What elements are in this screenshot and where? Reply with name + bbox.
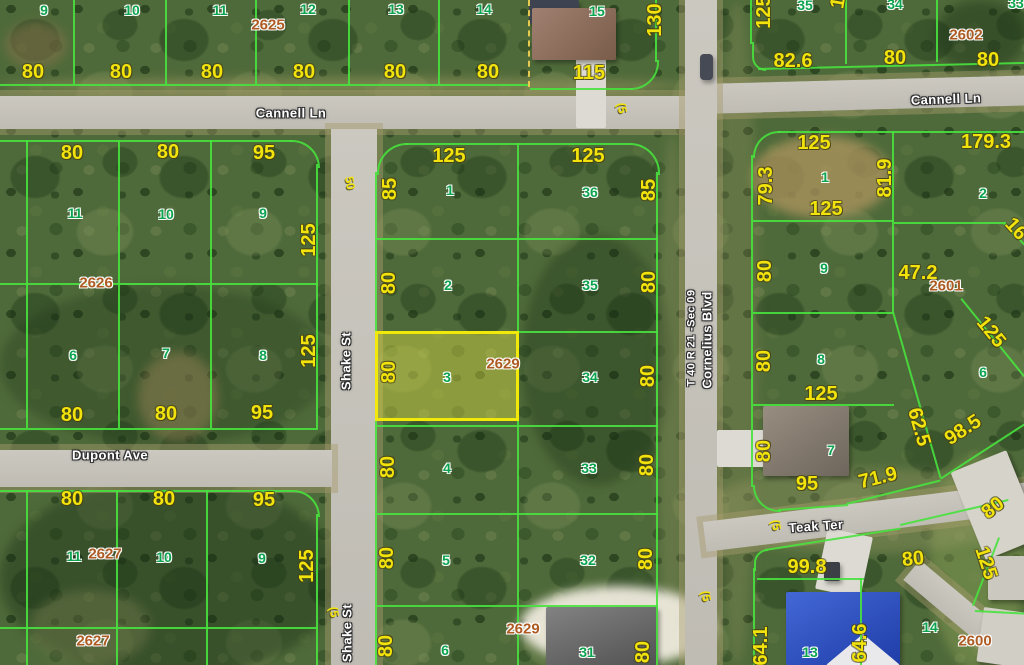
dimension-label: 80	[22, 62, 44, 82]
parcel-line	[750, 0, 752, 44]
lot-number-label: 8	[259, 348, 267, 362]
lot-number-label: 31	[579, 645, 595, 659]
parcel-corner-line	[630, 60, 659, 90]
parcel-line	[73, 0, 75, 84]
lot-number-label: 2	[979, 186, 987, 200]
dimension-label: 80	[755, 260, 775, 282]
lot-number-label: 13	[388, 2, 404, 16]
parcel-line	[116, 490, 118, 665]
dimension-label: 99.8	[788, 557, 827, 577]
parcel-map: Cannell LnCannell LnShake StShake StDupo…	[0, 0, 1024, 665]
curve-dimension-label: (5	[327, 606, 341, 619]
lot-number-label: 35	[797, 0, 813, 12]
curve-dimension-label: (5	[699, 590, 713, 603]
dimension-label: 80	[293, 62, 315, 82]
dimension-label: 98.5	[941, 411, 985, 449]
house-roof-lot7	[763, 406, 849, 476]
lot-number-label: 12	[300, 2, 316, 16]
dimension-label: 80	[201, 62, 223, 82]
lot-number-label: 11	[67, 549, 82, 563]
car-on-cornelius	[700, 54, 713, 80]
block-number-label: 2629	[486, 357, 519, 372]
dimension-label: 80	[977, 50, 999, 70]
street-name-label: Cornelius Blvd	[701, 291, 714, 388]
dimension-label: 80	[61, 143, 83, 163]
dimension-label: 80	[901, 548, 925, 570]
lot-number-label: 10	[124, 3, 140, 17]
dimension-label: 80	[378, 456, 398, 478]
parcel-corner-line	[377, 143, 408, 175]
dimension-label: 80	[636, 548, 656, 570]
parcel-line	[936, 0, 938, 62]
parcel-line	[26, 490, 28, 665]
block-number-label: 2601	[929, 279, 962, 294]
lot-number-label: 3	[443, 370, 451, 384]
parcel-line	[316, 514, 318, 665]
parcel-corner-line	[752, 42, 766, 71]
lot-number-label: 33	[581, 461, 597, 475]
dimension-label: 125	[432, 146, 465, 166]
parcel-line	[316, 164, 318, 428]
dimension-label: 80	[379, 361, 399, 383]
lot-number-label: 35	[582, 278, 598, 292]
curve-dimension-label: (5	[615, 102, 629, 115]
lot-number-label: 1	[446, 183, 454, 197]
dimension-label: 95	[253, 490, 275, 510]
dimension-label: 179.3	[961, 132, 1011, 152]
parcel-corner-line	[753, 485, 781, 512]
dimension-label: 80	[754, 350, 774, 372]
parcel-line	[0, 84, 529, 86]
parcel-line	[255, 0, 257, 84]
parcel-line	[438, 0, 440, 84]
lot-number-label: 14	[922, 620, 938, 634]
dimension-label: 80	[884, 48, 906, 68]
street-name-label: Cannell Ln	[911, 91, 982, 106]
dimension-label: 85	[639, 179, 659, 201]
dimension-label: 125	[299, 223, 319, 256]
dimension-label: 79.3	[756, 167, 776, 206]
lot-number-label: 8	[817, 352, 825, 366]
block-number-label: 2629	[506, 622, 539, 637]
parcel-line	[0, 140, 292, 142]
dimension-label: 16	[1001, 214, 1024, 244]
terrain-patch	[658, 132, 686, 662]
dimension-label: 125	[571, 146, 604, 166]
parcel-line	[348, 0, 350, 84]
lot-number-label: 5	[442, 553, 450, 567]
lot-number-label: 2	[444, 278, 452, 292]
dimension-label: 85	[380, 178, 400, 200]
parcel-line	[892, 312, 941, 478]
lot-number-label: 14	[476, 2, 492, 16]
block-number-label: 2625	[251, 18, 284, 33]
dimension-label: 80	[155, 404, 177, 424]
lot-number-label: 33	[1008, 0, 1024, 10]
lot-number-label: 9	[258, 551, 266, 565]
parcel-line	[757, 578, 864, 580]
parcel-line	[0, 490, 292, 492]
parcel-line	[0, 428, 318, 430]
parcel-line	[377, 605, 658, 607]
parcel-line	[0, 627, 318, 629]
dimension-label: 115	[573, 63, 605, 83]
dimension-label: 80	[110, 62, 132, 82]
dimension-label: 64.1	[751, 627, 771, 665]
parcel-corner-line	[290, 490, 320, 517]
dimension-label: 80	[153, 489, 175, 509]
lot-number-label: 7	[827, 443, 835, 457]
dimension-label: 125	[804, 384, 837, 404]
parcel-line	[377, 513, 658, 515]
dimension-label: 80	[376, 635, 396, 657]
parcel-line	[530, 88, 633, 90]
lot-number-label: 6	[979, 365, 987, 379]
dimension-label: 80	[384, 62, 406, 82]
street-name-label: Shake St	[341, 604, 354, 662]
block-number-label: 2627	[88, 547, 121, 562]
dimension-label: 81.9	[875, 159, 895, 198]
dimension-label: 80	[61, 405, 83, 425]
dimension-label: 71.9	[857, 464, 900, 493]
dimension-label: 130	[645, 3, 665, 36]
lot-number-label: 10	[156, 550, 172, 564]
dimension-label: 95	[251, 403, 273, 423]
road-dupont-ave	[0, 450, 332, 487]
lot-number-label: 34	[582, 370, 598, 384]
dimension-label: 80	[61, 489, 83, 509]
parcel-line	[377, 425, 658, 427]
street-name-label: Shake St	[340, 332, 353, 390]
curve-dimension-label: 50	[343, 175, 357, 190]
parcel-line	[206, 490, 208, 665]
dimension-label: 80	[638, 365, 658, 387]
block-number-label: 2600	[958, 634, 991, 649]
lot-number-label: 9	[259, 206, 267, 220]
dimension-label: 80	[379, 272, 399, 294]
block-number-label: 2627	[76, 634, 109, 649]
parcel-line	[656, 172, 658, 665]
dimension-label: 125	[754, 0, 774, 29]
lot-number-label: 4	[443, 461, 451, 475]
dimension-label: 80	[637, 454, 657, 476]
dimension-label: 80	[633, 641, 653, 663]
lot-number-label: 34	[887, 0, 903, 11]
street-name-label: Dupont Ave	[72, 449, 148, 462]
lot-number-label: 13	[802, 645, 818, 659]
road-shake-st	[331, 129, 377, 665]
dimension-label: 80	[477, 62, 499, 82]
lot-number-label: 10	[158, 207, 174, 221]
parcel-line	[165, 0, 167, 84]
dashed-parcel-line-lot15	[528, 0, 530, 87]
parcel-line	[0, 283, 318, 285]
dimension-label: 80	[377, 547, 397, 569]
lot-number-label: 1	[821, 170, 829, 184]
parcel-line	[753, 312, 894, 314]
lot-number-label: 6	[69, 348, 77, 362]
lot-number-label: 11	[213, 3, 228, 17]
dimension-label: 80	[754, 440, 774, 462]
dimension-label: 95	[253, 143, 275, 163]
street-name-label: Teak Ter	[788, 518, 844, 535]
dimension-label: 62.5	[904, 406, 934, 449]
parcel-corner-line	[629, 143, 660, 175]
lot-number-label: 6	[441, 643, 449, 657]
parcel-corner-line	[753, 131, 781, 158]
lot-number-label: 15	[589, 4, 605, 18]
dimension-label: 125	[797, 133, 830, 153]
parcel-line	[751, 155, 753, 487]
lot-number-label: 9	[40, 3, 48, 17]
block-number-label: 2602	[949, 28, 982, 43]
dimension-label: 125	[809, 199, 842, 219]
lot-number-label: 11	[68, 206, 83, 220]
parcel-line	[377, 238, 658, 240]
lot-number-label: 9	[820, 261, 828, 275]
curve-dimension-label: (5	[769, 519, 783, 532]
dimension-label: 80	[639, 271, 659, 293]
dimension-label: 80	[157, 142, 179, 162]
parcel-corner-line	[754, 549, 768, 571]
lot-number-label: 32	[580, 553, 596, 567]
dimension-label: 125	[299, 334, 319, 367]
dimension-label: 64.6	[850, 624, 870, 663]
lot-number-label: 7	[162, 346, 170, 360]
dimension-label: 82.6	[774, 51, 813, 71]
parcel-line	[894, 222, 1006, 224]
street-name-label: Cannell Ln	[256, 107, 326, 120]
dimension-label: 125	[297, 549, 317, 582]
lot-number-label: 36	[582, 185, 598, 199]
street-name-label: T 40 R 21 -Sec 09	[687, 290, 698, 387]
dimension-label: 95	[796, 474, 818, 494]
parcel-corner-line	[290, 140, 320, 168]
block-number-label: 2626	[79, 276, 112, 291]
dimension-label: 125	[827, 0, 852, 10]
parcel-line	[753, 220, 894, 222]
